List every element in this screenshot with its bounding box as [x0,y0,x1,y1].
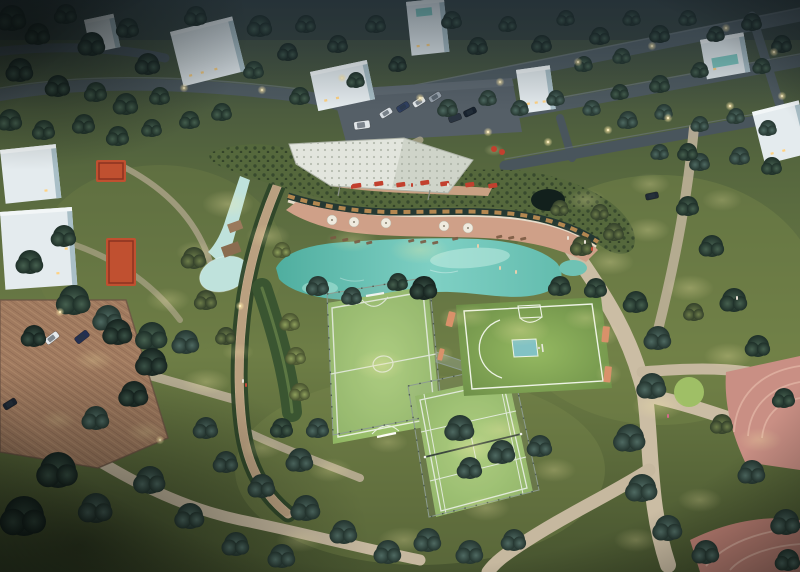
site-render-canvas: Aerial dusk rendering of a residential c… [0,0,800,572]
aerial-site-rendering: Aerial dusk rendering of a residential c… [0,0,800,572]
vignette [0,0,800,572]
